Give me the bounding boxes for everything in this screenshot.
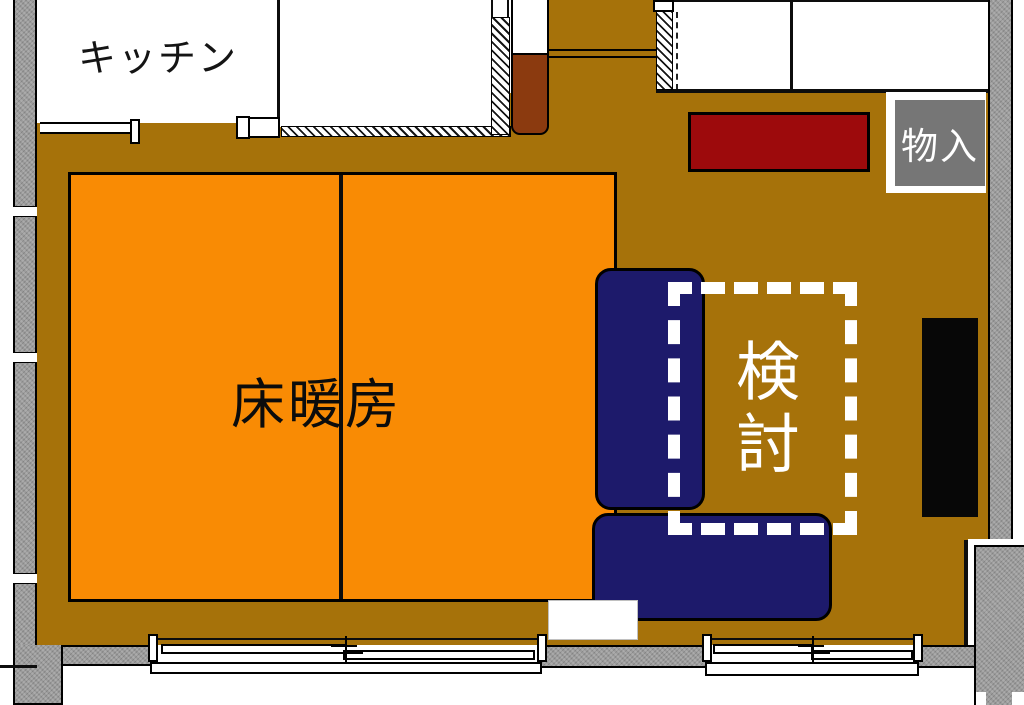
kitchen-counter (40, 122, 135, 134)
window-sill-left (150, 662, 542, 674)
door-swing-dashed-line (676, 12, 678, 90)
wall-stub-bottom-right (917, 645, 977, 668)
wall-line-b (507, 0, 509, 18)
review-zone-dashed-box (668, 282, 857, 535)
pillar-foot-notch-right (1012, 692, 1024, 705)
window-interlock-tick (798, 645, 824, 647)
upper-right-room (673, 0, 988, 92)
wall-left-slit-2 (13, 352, 37, 363)
pillar-foot-notch-left (976, 692, 986, 705)
window-interlock-tick (337, 652, 363, 654)
window-frame-line (155, 638, 541, 640)
wall-stub-bottom-mid (541, 645, 709, 668)
hatched-wall-vertical (491, 17, 510, 135)
hatched-wall-top (281, 126, 511, 137)
storage-label: 物入 (901, 116, 979, 170)
window-left (155, 638, 541, 664)
window-interlock-tick (331, 645, 357, 647)
upper-right-room-partition (790, 0, 793, 89)
window-interlock (345, 636, 347, 664)
entry-wall-cap (653, 0, 674, 12)
wall-left (13, 0, 37, 650)
wall-left-slit-3 (13, 573, 37, 584)
step-box (548, 600, 638, 640)
window-jamb (913, 634, 923, 662)
storage-box: 物入 (895, 100, 985, 186)
red-sideboard (688, 112, 870, 172)
window-interlock (812, 636, 814, 664)
floor-heating-area (68, 172, 617, 602)
window-jamb (702, 634, 712, 662)
window-right (709, 638, 917, 664)
wall-line-a (491, 0, 493, 18)
window-sill-right (705, 662, 919, 676)
wall-right (988, 0, 1013, 542)
floor-plan: キッチン 物入 床暖房 (0, 0, 1024, 705)
pillar-bottom-left (13, 645, 63, 705)
door-jamb-left (130, 119, 140, 144)
window-interlock-tick (804, 652, 830, 654)
window-sash (161, 644, 347, 654)
upper-mid-room (280, 0, 492, 127)
door-notch (248, 117, 280, 138)
exterior-line-bottom-left (0, 665, 37, 668)
floor-heating-divider (339, 175, 343, 599)
hatched-wall-entry (656, 0, 673, 90)
window-sash (343, 650, 535, 660)
tv-board (922, 318, 978, 517)
corridor-wall-line (549, 49, 657, 58)
upper-right-room-top-wall (672, 0, 988, 2)
corridor-floor (548, 0, 657, 95)
window-jamb (537, 634, 547, 662)
pillar-bottom-right (974, 545, 1024, 705)
upper-cabinet (511, 0, 549, 54)
wall-left-slit-1 (13, 206, 37, 217)
window-jamb (148, 634, 158, 662)
tall-cabinet (511, 53, 549, 135)
kitchen-room (37, 0, 277, 123)
